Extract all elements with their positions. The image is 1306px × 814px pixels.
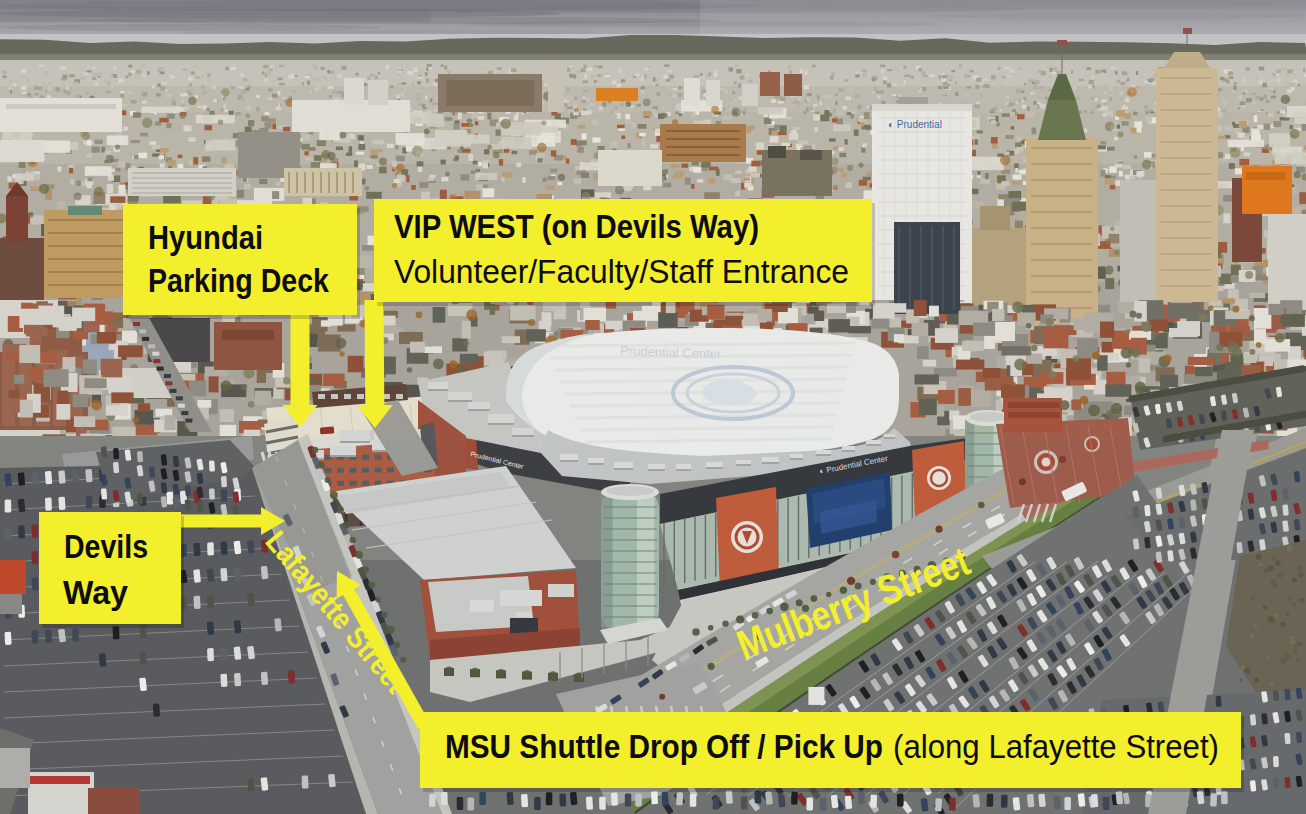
svg-text:MSU Shuttle Drop Off / Pick Up: MSU Shuttle Drop Off / Pick Up bbox=[445, 727, 883, 765]
svg-text:Devils: Devils bbox=[64, 527, 148, 565]
svg-text:Volunteer/Faculty/Staff Entran: Volunteer/Faculty/Staff Entrance bbox=[394, 252, 849, 290]
svg-text:Hyundai: Hyundai bbox=[148, 218, 263, 256]
svg-text:Parking Deck: Parking Deck bbox=[148, 261, 329, 299]
svg-text:VIP WEST (on Devils Way): VIP WEST (on Devils Way) bbox=[394, 207, 759, 245]
svg-text:(along Lafayette Street): (along Lafayette Street) bbox=[893, 727, 1219, 765]
svg-text:Way: Way bbox=[63, 573, 128, 611]
